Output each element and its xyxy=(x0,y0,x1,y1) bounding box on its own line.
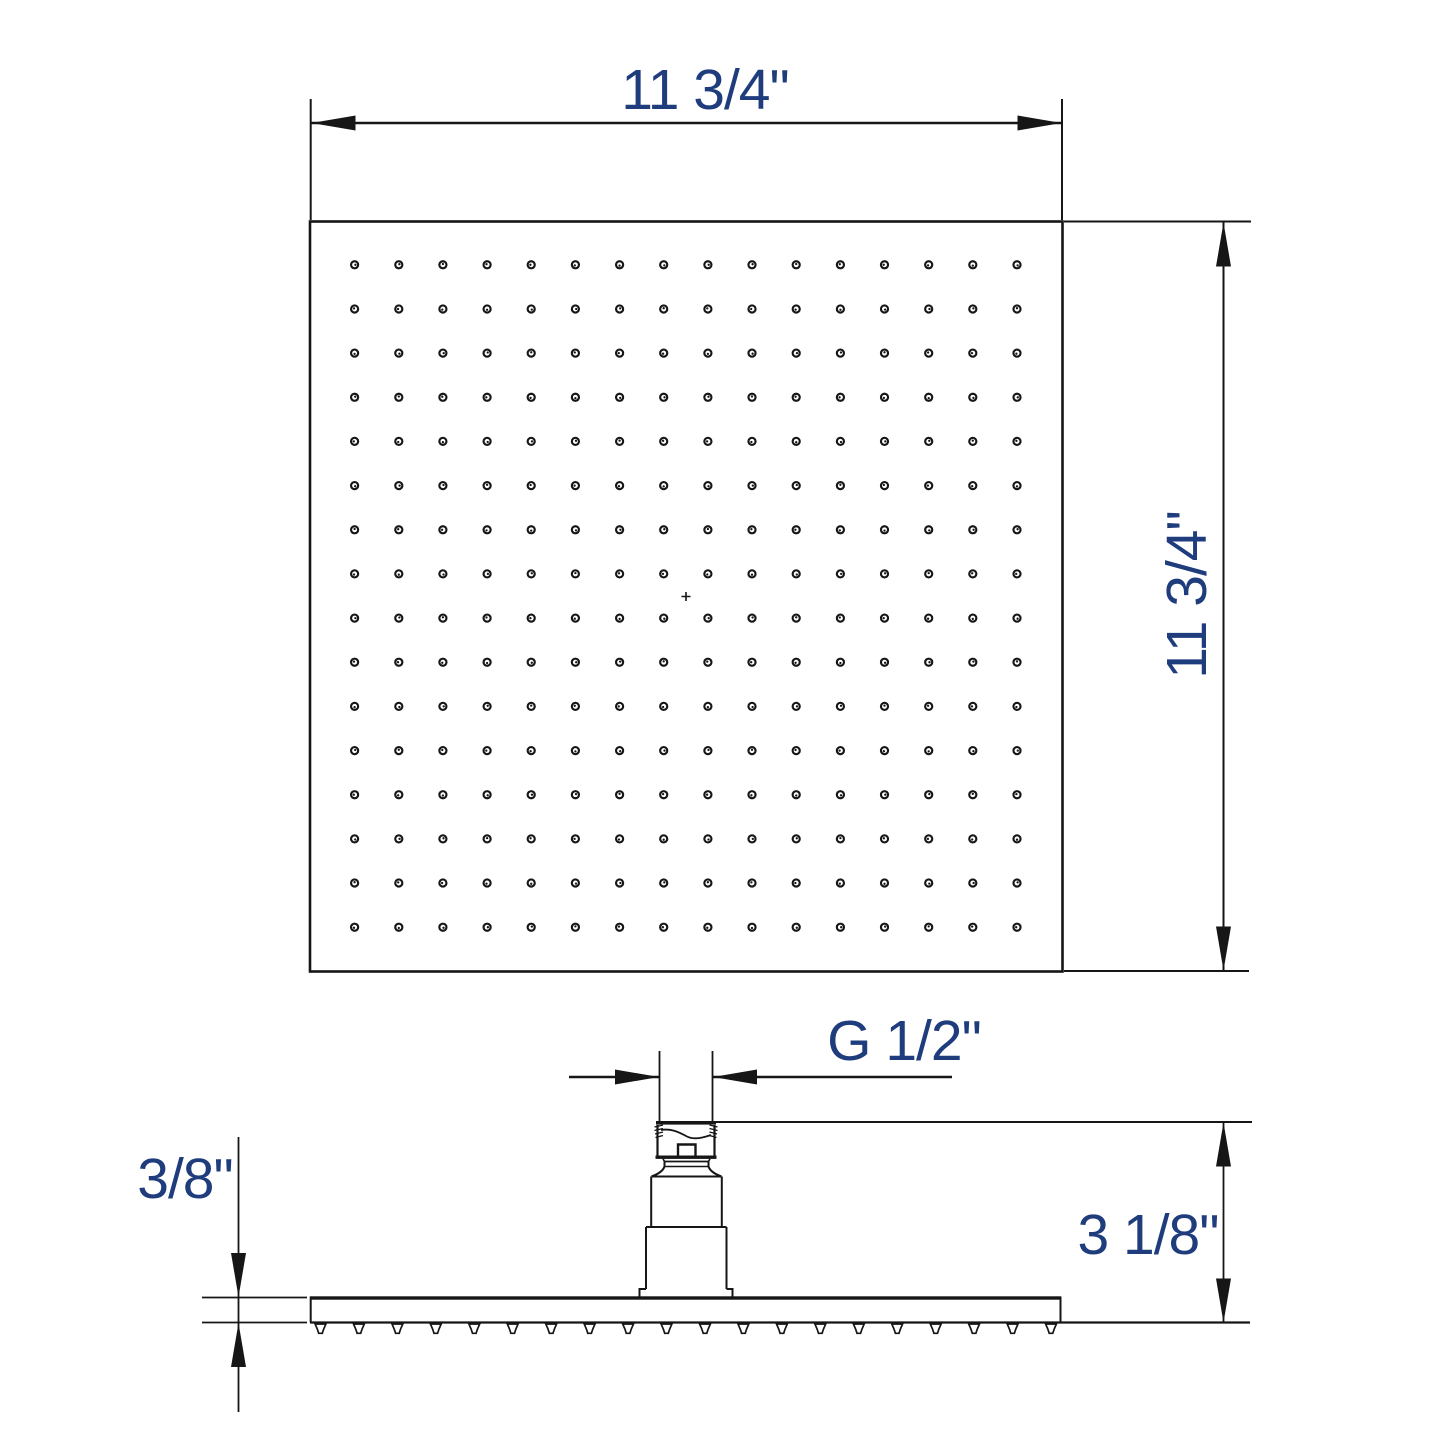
svg-text:11 3/4": 11 3/4" xyxy=(1155,511,1219,678)
svg-text:11 3/4": 11 3/4" xyxy=(621,58,788,122)
svg-text:G 1/2": G 1/2" xyxy=(827,1009,981,1073)
svg-text:3 1/8": 3 1/8" xyxy=(1077,1203,1218,1267)
svg-text:3/8": 3/8" xyxy=(137,1147,232,1211)
